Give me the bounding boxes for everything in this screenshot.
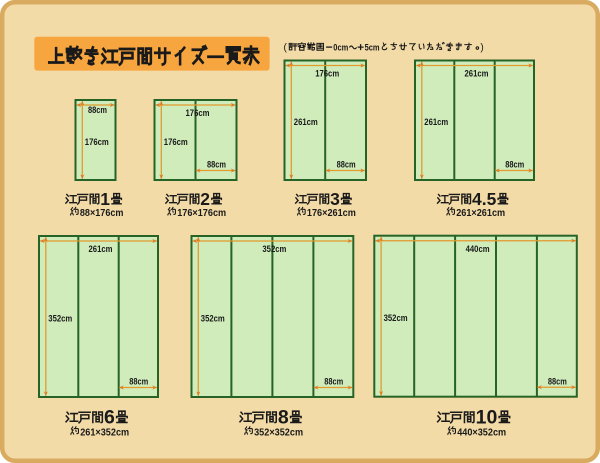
- svg-text:352cm: 352cm: [48, 314, 72, 325]
- svg-text:261×352cm: 261×352cm: [80, 427, 129, 438]
- svg-text:88cm: 88cm: [337, 160, 356, 171]
- svg-text:261cm: 261cm: [465, 69, 489, 80]
- svg-text:88cm: 88cm: [129, 377, 148, 388]
- svg-text:176×176cm: 176×176cm: [177, 208, 226, 219]
- svg-text:88×176cm: 88×176cm: [80, 208, 124, 219]
- svg-text:352cm: 352cm: [262, 244, 286, 255]
- svg-text:88cm: 88cm: [207, 160, 226, 171]
- svg-text:176cm: 176cm: [164, 137, 188, 148]
- svg-text:352cm: 352cm: [384, 313, 408, 324]
- svg-text:3: 3: [330, 189, 340, 209]
- svg-text:88cm: 88cm: [505, 160, 524, 171]
- svg-text:88cm: 88cm: [324, 377, 343, 388]
- svg-text:5cm: 5cm: [365, 42, 380, 53]
- svg-text:10: 10: [476, 407, 498, 429]
- svg-text:440×352cm: 440×352cm: [457, 427, 506, 438]
- svg-text:1: 1: [100, 189, 110, 209]
- svg-text:176cm: 176cm: [186, 108, 210, 119]
- svg-text:261cm: 261cm: [294, 117, 318, 128]
- svg-text:176×261cm: 176×261cm: [307, 208, 356, 219]
- svg-text:6: 6: [104, 407, 115, 429]
- svg-text:): ): [480, 42, 483, 53]
- svg-text:352cm: 352cm: [201, 314, 225, 325]
- svg-text:88cm: 88cm: [548, 376, 567, 387]
- svg-text:8: 8: [278, 407, 289, 429]
- svg-text:261×261cm: 261×261cm: [456, 208, 505, 219]
- svg-text:261cm: 261cm: [424, 117, 448, 128]
- svg-text:352×352cm: 352×352cm: [254, 427, 303, 438]
- svg-text:4.5: 4.5: [472, 189, 497, 209]
- svg-text:176cm: 176cm: [315, 69, 339, 80]
- svg-text:2: 2: [200, 189, 210, 209]
- svg-text:88cm: 88cm: [88, 105, 107, 116]
- svg-text:261cm: 261cm: [89, 244, 113, 255]
- svg-text:0cm: 0cm: [333, 42, 348, 53]
- svg-text:440cm: 440cm: [466, 244, 490, 255]
- svg-text:176cm: 176cm: [85, 137, 109, 148]
